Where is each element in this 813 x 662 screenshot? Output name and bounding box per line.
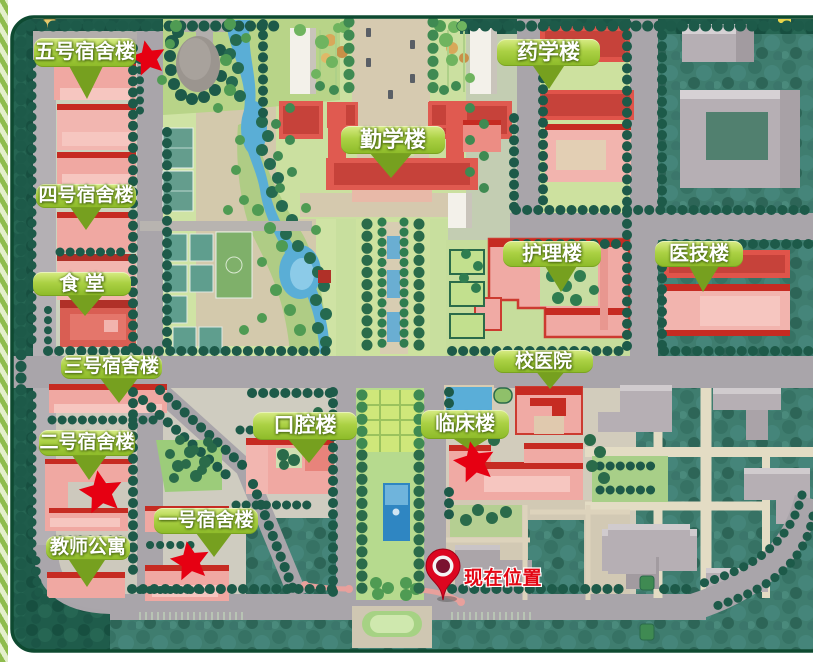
svg-text:现在位置: 现在位置 [464, 566, 542, 589]
